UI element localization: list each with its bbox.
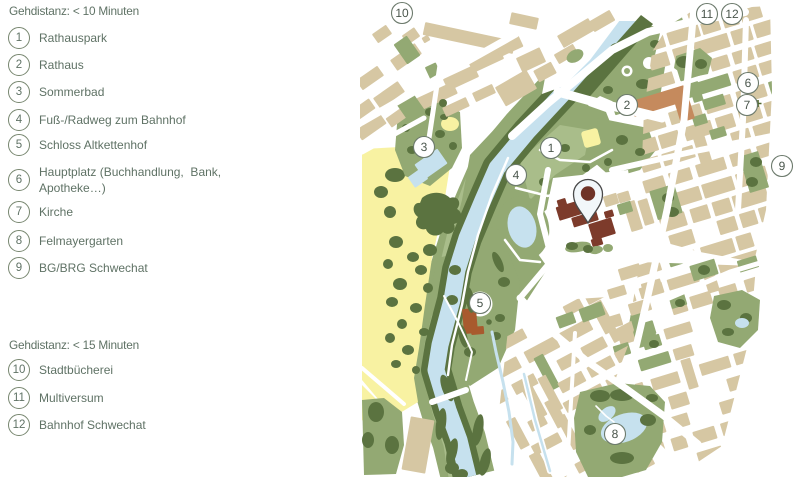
svg-text:3: 3	[421, 140, 428, 154]
svg-text:4: 4	[513, 168, 520, 182]
svg-text:9: 9	[779, 159, 786, 173]
svg-text:5: 5	[477, 296, 484, 310]
svg-text:12: 12	[725, 7, 739, 21]
svg-text:7: 7	[744, 98, 751, 112]
svg-text:1: 1	[548, 141, 555, 155]
svg-text:2: 2	[624, 98, 631, 112]
svg-text:11: 11	[701, 7, 714, 21]
svg-text:6: 6	[745, 76, 752, 90]
svg-text:8: 8	[612, 427, 619, 441]
svg-text:10: 10	[395, 6, 409, 20]
